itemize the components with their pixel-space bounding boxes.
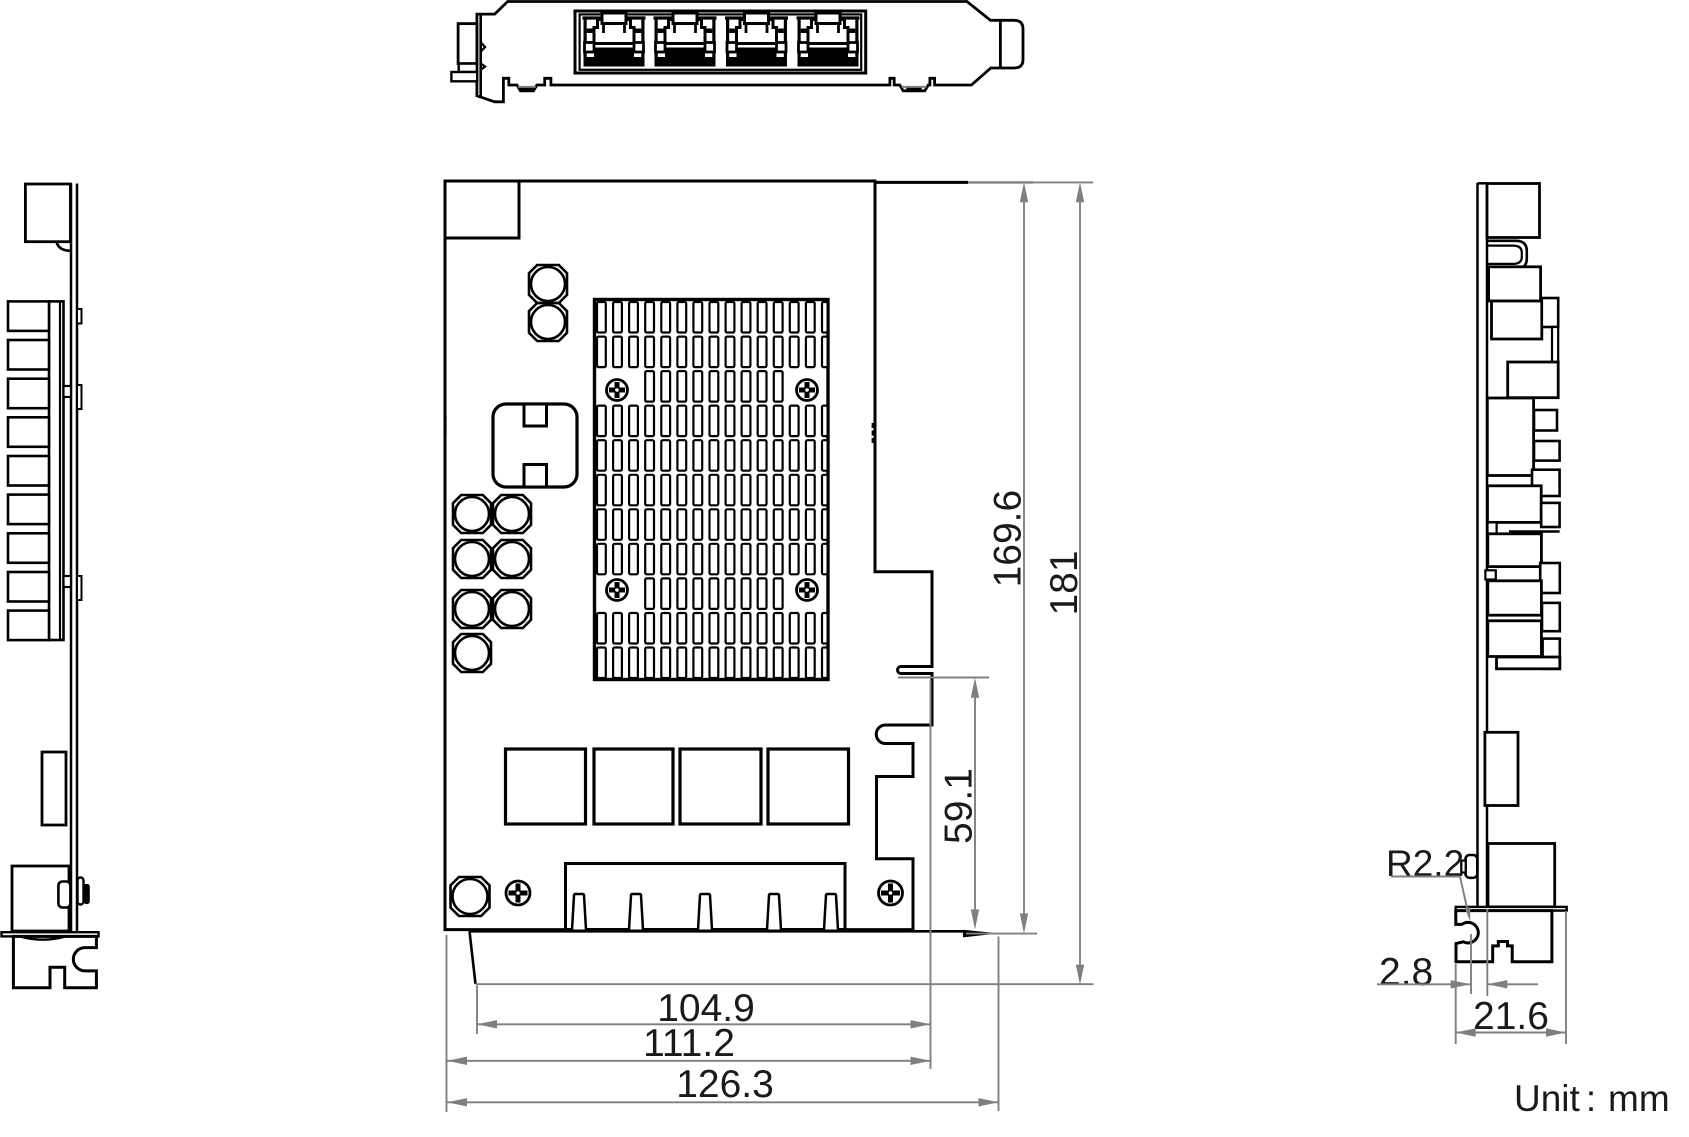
svg-text:59.1: 59.1 xyxy=(938,768,981,844)
svg-text:111.2: 111.2 xyxy=(643,1022,735,1065)
svg-text:Unit:mm: Unit:mm xyxy=(1514,1078,1670,1119)
svg-text:169.6: 169.6 xyxy=(987,490,1030,588)
svg-text:2.8: 2.8 xyxy=(1379,951,1433,994)
svg-text:181: 181 xyxy=(1043,550,1086,615)
svg-text:126.3: 126.3 xyxy=(676,1063,774,1106)
svg-text:R2.2: R2.2 xyxy=(1386,843,1464,884)
